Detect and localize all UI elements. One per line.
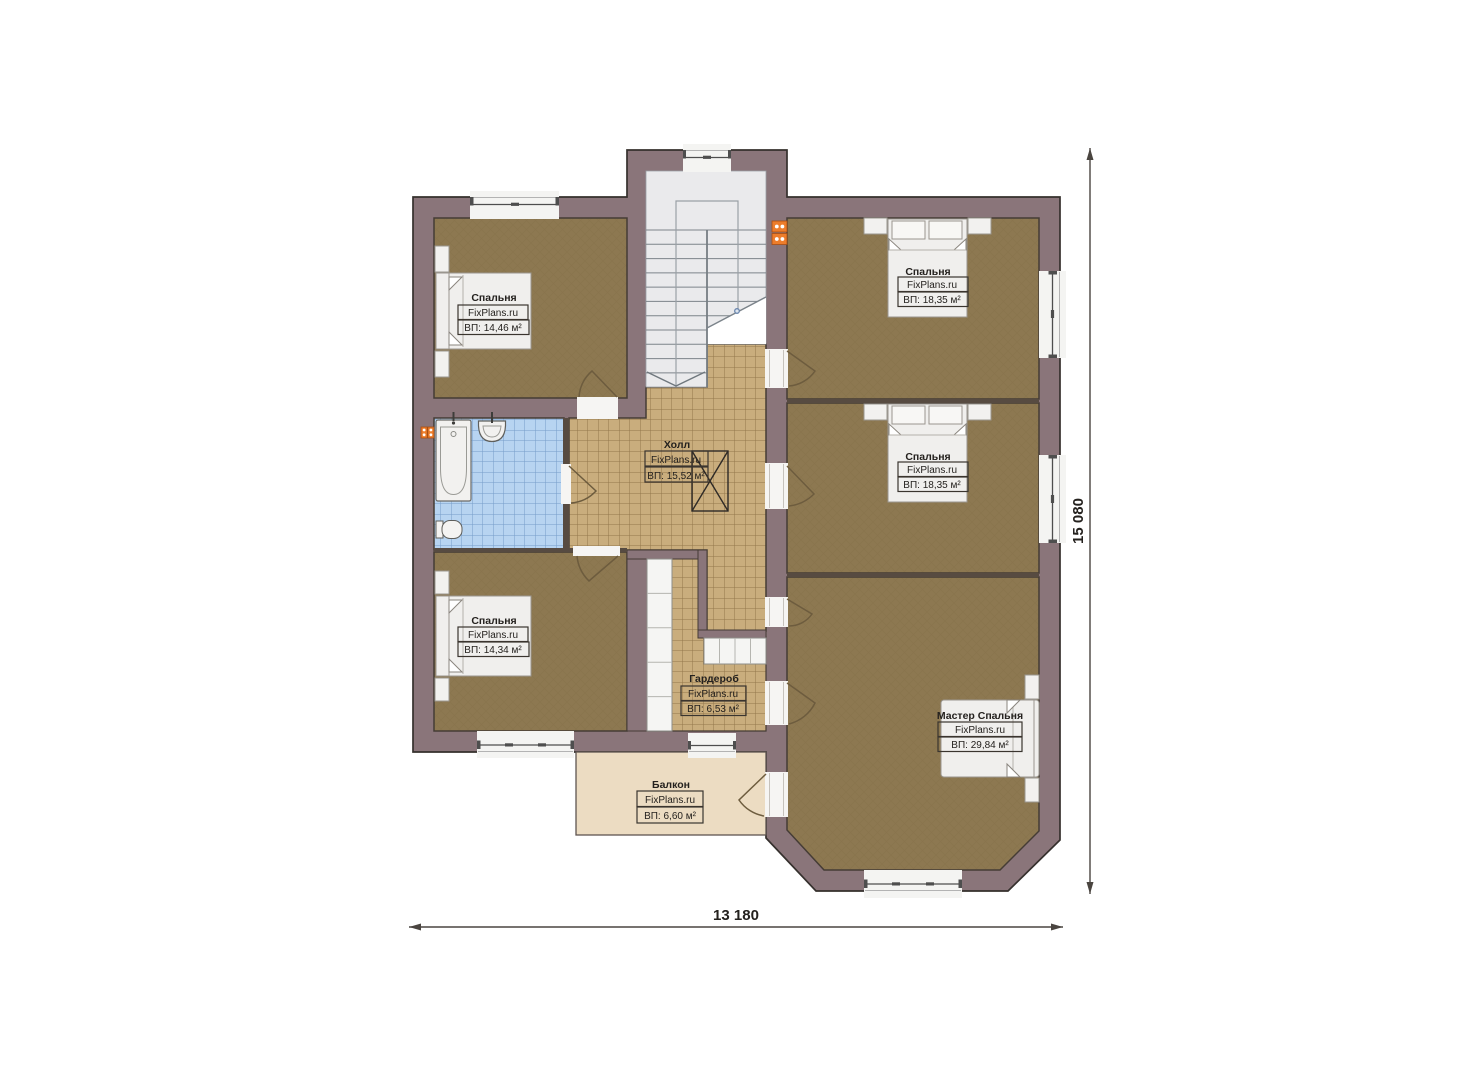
svg-text:ВП: 18,35 м²: ВП: 18,35 м² — [903, 295, 961, 306]
svg-text:ВП: 18,35 м²: ВП: 18,35 м² — [903, 480, 961, 491]
svg-text:Спальня: Спальня — [905, 266, 950, 278]
svg-text:Балкон: Балкон — [652, 779, 690, 791]
svg-text:ВП: 15,52 м²: ВП: 15,52 м² — [647, 471, 705, 482]
svg-text:FixPlans.ru: FixPlans.ru — [645, 795, 695, 806]
svg-text:FixPlans.ru: FixPlans.ru — [468, 308, 518, 319]
svg-text:ВП: 6,60 м²: ВП: 6,60 м² — [644, 811, 697, 822]
svg-text:FixPlans.ru: FixPlans.ru — [688, 689, 738, 700]
svg-text:FixPlans.ru: FixPlans.ru — [955, 725, 1005, 736]
svg-text:FixPlans.ru: FixPlans.ru — [468, 630, 518, 641]
svg-text:FixPlans.ru: FixPlans.ru — [907, 465, 957, 476]
svg-text:FixPlans.ru: FixPlans.ru — [651, 455, 701, 466]
svg-text:Мастер Спальня: Мастер Спальня — [937, 710, 1023, 722]
svg-text:ВП: 14,46 м²: ВП: 14,46 м² — [464, 323, 522, 334]
svg-text:ВП: 29,84 м²: ВП: 29,84 м² — [951, 740, 1009, 751]
svg-text:Спальня: Спальня — [905, 451, 950, 463]
svg-text:Спальня: Спальня — [471, 615, 516, 627]
svg-text:FixPlans.ru: FixPlans.ru — [907, 280, 957, 291]
svg-text:Холл: Холл — [664, 439, 690, 451]
svg-text:13 180: 13 180 — [713, 907, 759, 924]
svg-text:ВП: 6,53 м²: ВП: 6,53 м² — [687, 704, 740, 715]
svg-text:ВП: 14,34 м²: ВП: 14,34 м² — [464, 645, 522, 656]
svg-text:15 080: 15 080 — [1070, 498, 1087, 544]
svg-text:Спальня: Спальня — [471, 292, 516, 304]
svg-text:Гардероб: Гардероб — [689, 673, 739, 685]
